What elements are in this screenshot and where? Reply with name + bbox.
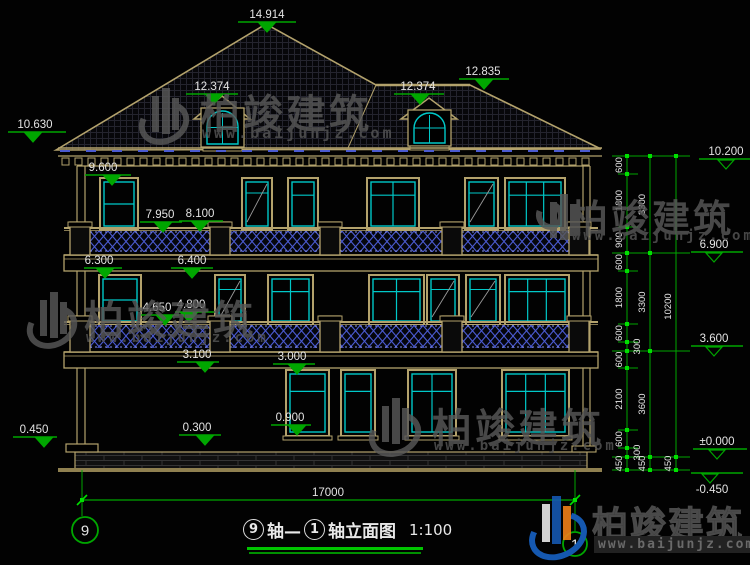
brand-url: www.baijunjz.com xyxy=(594,536,750,553)
window xyxy=(100,178,138,230)
svg-text:3.100: 3.100 xyxy=(183,349,212,361)
roof xyxy=(56,24,601,150)
window xyxy=(288,178,318,230)
svg-text:0.450: 0.450 xyxy=(20,424,49,436)
svg-text:300: 300 xyxy=(632,339,643,355)
axis-bubble-9: 9 xyxy=(72,517,98,543)
svg-text:600: 600 xyxy=(614,431,625,447)
drawing-title: 9 轴— 1 轴立面图 1:100 xyxy=(243,517,452,542)
brand-logo-color: 柏竣建筑 www.baijunjz.com xyxy=(528,492,750,562)
svg-text:900: 900 xyxy=(614,232,625,248)
svg-text:600: 600 xyxy=(614,254,625,270)
svg-text:14.914: 14.914 xyxy=(249,9,285,21)
svg-text:3300: 3300 xyxy=(637,194,648,215)
svg-text:7.950: 7.950 xyxy=(146,209,175,221)
elevation-marker: 0.300 xyxy=(179,422,221,445)
elevation-marker: ±0.000 xyxy=(693,436,747,459)
title-text-join: 轴— xyxy=(267,517,301,542)
elevation-marker: 6.900 xyxy=(691,239,743,262)
svg-text:10.200: 10.200 xyxy=(708,146,743,158)
svg-text:4.650: 4.650 xyxy=(143,302,172,314)
svg-text:1800: 1800 xyxy=(614,287,625,308)
svg-text:12.835: 12.835 xyxy=(465,66,500,78)
building-elevation-svg: 6001800900600180060030060021006003004503… xyxy=(0,0,750,565)
window xyxy=(466,275,500,325)
svg-text:9.600: 9.600 xyxy=(89,162,118,174)
svg-text:6.900: 6.900 xyxy=(700,239,729,251)
window xyxy=(268,275,313,325)
title-text-rest: 轴立面图 xyxy=(328,517,396,542)
elevation-marker: 3.600 xyxy=(691,333,743,356)
svg-text:0.300: 0.300 xyxy=(183,422,212,434)
svg-text:600: 600 xyxy=(614,352,625,368)
svg-text:600: 600 xyxy=(614,157,625,173)
window xyxy=(499,370,572,440)
axis-bubble-1: 1 xyxy=(304,519,325,540)
svg-text:6.400: 6.400 xyxy=(178,255,207,267)
elevation-marker: 10.630 xyxy=(8,119,66,142)
svg-text:6.300: 6.300 xyxy=(85,255,114,267)
title-underline-2 xyxy=(249,552,421,554)
svg-text:3.000: 3.000 xyxy=(278,351,307,363)
elevation-marker: 14.914 xyxy=(238,9,296,32)
svg-text:10200: 10200 xyxy=(663,293,674,319)
window xyxy=(338,370,378,440)
svg-text:12.374: 12.374 xyxy=(194,81,230,93)
window xyxy=(465,178,498,230)
svg-text:450: 450 xyxy=(614,456,625,472)
svg-text:3600: 3600 xyxy=(637,393,648,414)
window xyxy=(367,178,419,230)
svg-text:±0.000: ±0.000 xyxy=(699,436,734,448)
drawing-scale: 1:100 xyxy=(409,521,452,539)
svg-text:3300: 3300 xyxy=(637,291,648,312)
window xyxy=(369,275,424,325)
balustrade xyxy=(64,316,598,352)
elevation-marker: 10.200 xyxy=(699,146,750,169)
svg-text:1800: 1800 xyxy=(614,190,625,211)
dimension-chain: 330033003600450 xyxy=(637,154,652,472)
svg-text:2100: 2100 xyxy=(614,388,625,409)
window xyxy=(99,275,141,325)
axis-bubble-9: 9 xyxy=(243,519,264,540)
svg-text:12.374: 12.374 xyxy=(400,81,436,93)
svg-text:4.800: 4.800 xyxy=(177,299,206,311)
window xyxy=(242,178,272,230)
title-underline xyxy=(247,547,423,550)
window xyxy=(283,370,332,440)
svg-text:450: 450 xyxy=(637,456,648,472)
svg-text:600: 600 xyxy=(614,325,625,341)
elevation-marker: 0.450 xyxy=(13,424,57,447)
svg-text:450: 450 xyxy=(663,456,674,472)
svg-text:10.630: 10.630 xyxy=(17,119,52,131)
svg-text:17000: 17000 xyxy=(312,487,344,499)
window xyxy=(505,275,569,325)
svg-text:9: 9 xyxy=(81,523,89,540)
svg-text:8.100: 8.100 xyxy=(186,208,215,220)
cad-elevation-drawing: 6001800900600180060030060021006003004503… xyxy=(0,0,750,565)
svg-text:3.600: 3.600 xyxy=(700,333,729,345)
dimension-chain: 10200450 xyxy=(663,154,678,472)
brand-logo-icon xyxy=(528,494,590,558)
window xyxy=(405,370,459,440)
windows-floor1 xyxy=(283,370,572,440)
window xyxy=(505,178,565,230)
eave xyxy=(58,148,602,166)
svg-text:0.900: 0.900 xyxy=(276,412,305,424)
